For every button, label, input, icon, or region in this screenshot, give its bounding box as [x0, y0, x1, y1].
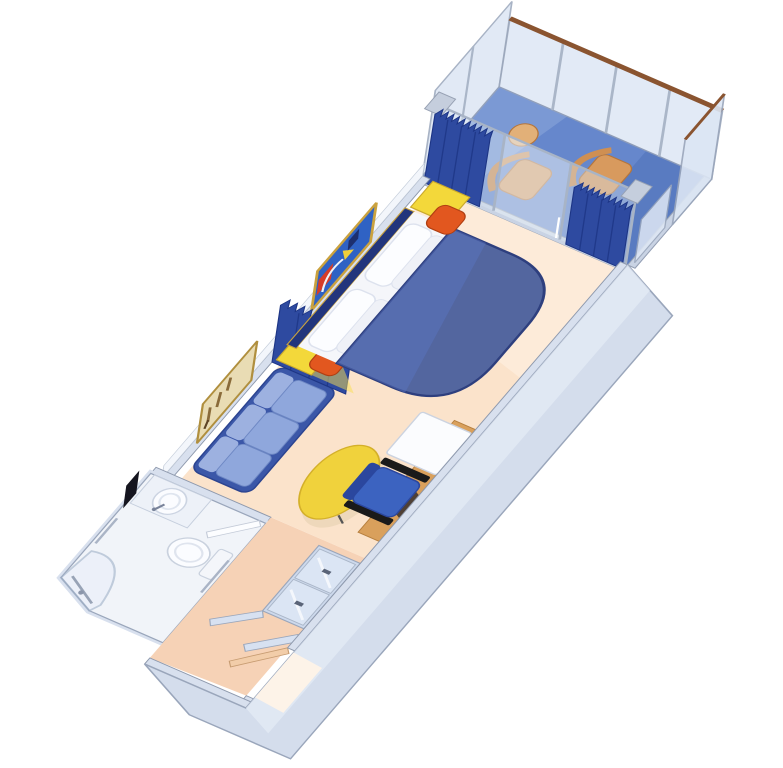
- plan-projection: [0, 1, 783, 758]
- floorplan-svg: [0, 0, 783, 768]
- stateroom-floorplan-illustration: [0, 0, 783, 768]
